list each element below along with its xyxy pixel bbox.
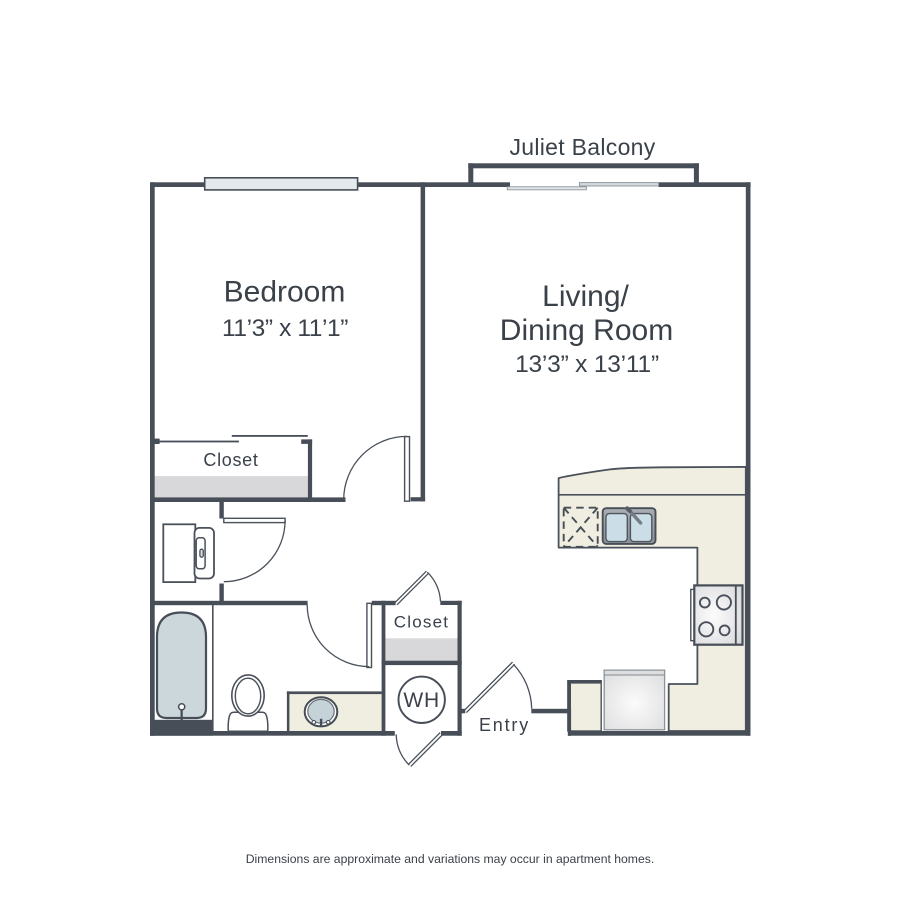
svg-text:WH: WH [403, 689, 440, 712]
svg-text:Dining Room: Dining Room [500, 314, 673, 347]
svg-text:11’3” x 11’1”: 11’3” x 11’1” [222, 315, 348, 342]
svg-text:Juliet Balcony: Juliet Balcony [509, 134, 655, 160]
svg-text:13’3” x 13’11”: 13’3” x 13’11” [515, 351, 659, 378]
svg-text:Entry: Entry [479, 715, 530, 735]
svg-text:Closet: Closet [394, 613, 449, 632]
svg-text:Dimensions are approximate and: Dimensions are approximate and variation… [246, 852, 654, 866]
svg-text:Bedroom: Bedroom [224, 276, 346, 309]
svg-text:Living/: Living/ [542, 280, 629, 313]
svg-text:Closet: Closet [203, 450, 258, 470]
